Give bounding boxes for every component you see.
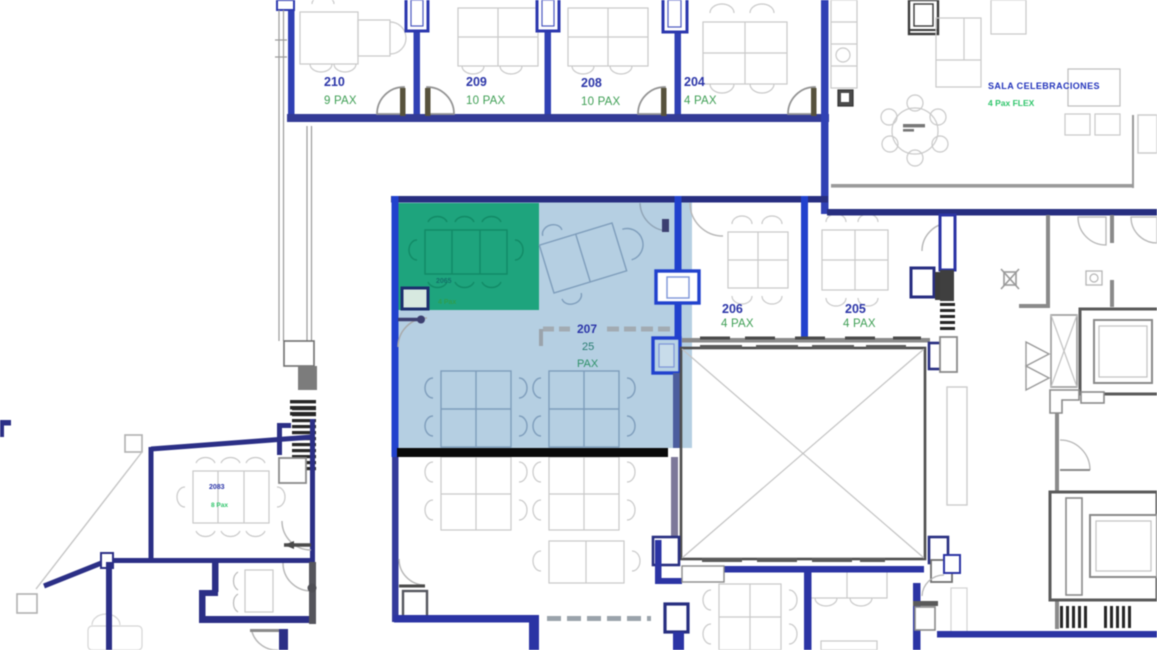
svg-text:209: 209 bbox=[466, 75, 487, 89]
svg-text:8 Pax: 8 Pax bbox=[211, 502, 228, 509]
svg-text:4 Pax FLEX: 4 Pax FLEX bbox=[988, 98, 1035, 108]
svg-text:4 PAX: 4 PAX bbox=[684, 95, 717, 107]
svg-text:10 PAX: 10 PAX bbox=[581, 96, 620, 108]
svg-text:204: 204 bbox=[684, 75, 705, 89]
svg-text:4 PAX: 4 PAX bbox=[721, 318, 754, 330]
svg-text:4 PAX: 4 PAX bbox=[843, 318, 876, 330]
svg-text:206: 206 bbox=[722, 302, 743, 316]
svg-text:25: 25 bbox=[582, 341, 594, 353]
svg-text:207: 207 bbox=[577, 322, 597, 336]
svg-text:SALA CELEBRACIONES: SALA CELEBRACIONES bbox=[988, 81, 1100, 91]
svg-text:PAX: PAX bbox=[577, 358, 599, 370]
svg-text:4 Pax: 4 Pax bbox=[438, 299, 456, 306]
svg-text:205: 205 bbox=[845, 302, 866, 316]
svg-text:2065: 2065 bbox=[436, 278, 452, 285]
svg-text:10 PAX: 10 PAX bbox=[466, 95, 505, 107]
svg-text:208: 208 bbox=[581, 76, 602, 90]
svg-text:9 PAX: 9 PAX bbox=[324, 95, 357, 107]
svg-text:210: 210 bbox=[324, 75, 345, 89]
svg-text:2083: 2083 bbox=[209, 484, 225, 491]
